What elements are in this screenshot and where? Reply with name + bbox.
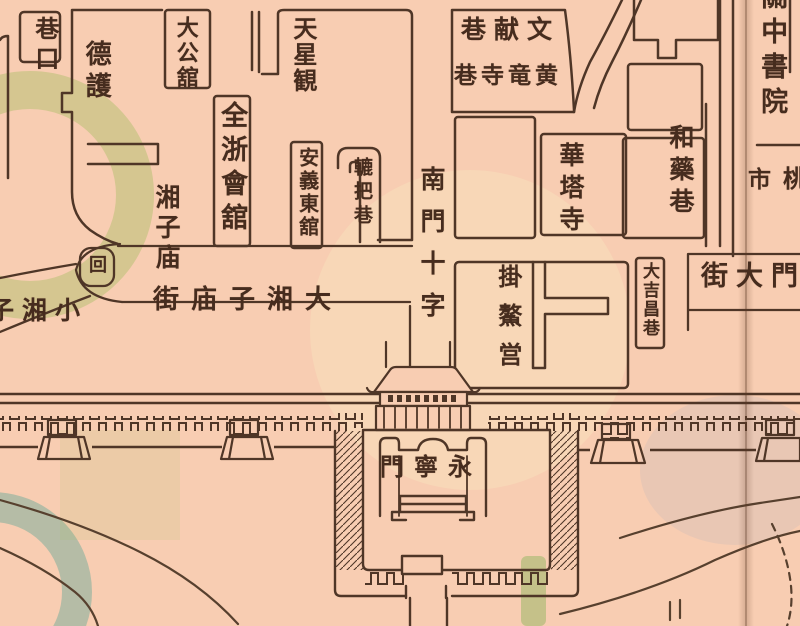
- label-daxiangzimiaojie: 大湘子庙街: [148, 286, 343, 314]
- tower-cap: [602, 424, 630, 439]
- label-nanmen-crossing: 南門十字: [417, 166, 444, 334]
- label-dehu: 德護: [82, 40, 110, 104]
- paper-crease: [738, 0, 754, 626]
- label-heyaoxiang: 和藥巷: [666, 124, 693, 220]
- sluice-gate-house: [402, 556, 442, 574]
- label-xiaoxiangzi: 小湘子: [0, 298, 88, 325]
- label-quanzhe-huiguan: 全浙會舘: [217, 101, 246, 237]
- label-wenxianxiang: 文献巷: [462, 17, 560, 44]
- label-tao-partial: 桃: [783, 168, 800, 194]
- label-guanzhong-academy: 關中書院: [757, 0, 786, 122]
- lane-ne-vertical: [706, 0, 733, 256]
- label-mendajie: 門大街: [698, 262, 800, 291]
- label-alley-mouth: 巷口: [30, 16, 56, 76]
- tower-cap: [48, 420, 76, 435]
- label-dagongguan: 大公舘: [174, 16, 198, 91]
- bridge-marks: [670, 600, 680, 620]
- historic-city-map: 巷口 德護 大公舘 全浙會舘 天星観 安義東舘 轆把巷 南門十字 文献巷 黄竜寺…: [0, 0, 800, 626]
- label-anyi-dongguan: 安義東舘: [295, 147, 317, 239]
- wall-tower: [591, 440, 645, 463]
- temple-symbol: 回: [89, 256, 107, 275]
- wall-tower: [221, 437, 273, 459]
- label-guaaoying: 掛鰲営: [493, 264, 519, 381]
- block-ne-mid: [628, 64, 702, 130]
- tower-cap: [766, 420, 794, 435]
- label-shi: 市: [748, 168, 771, 193]
- label-lubaxiang: 轆把巷: [352, 157, 371, 229]
- label-tianxingguan: 天星観: [288, 16, 314, 94]
- road-from-gate: [410, 598, 447, 626]
- moat-path-dashed: [772, 524, 792, 626]
- label-yongningmen: 永寧門: [386, 456, 482, 482]
- lane-crooked: [574, 0, 641, 112]
- lane-by-dagongguan: [252, 12, 259, 72]
- block-ne-top: [634, 0, 718, 58]
- tower-cap: [230, 420, 258, 435]
- label-xiangzimiao: 湘子庙: [152, 184, 179, 274]
- label-huatasi: 華塔寺: [556, 142, 583, 238]
- map-drawing: [0, 0, 800, 626]
- label-dajichangxiang: 大吉昌巷: [641, 262, 658, 338]
- label-huanglongsixiang: 黄竜寺巷: [450, 64, 562, 89]
